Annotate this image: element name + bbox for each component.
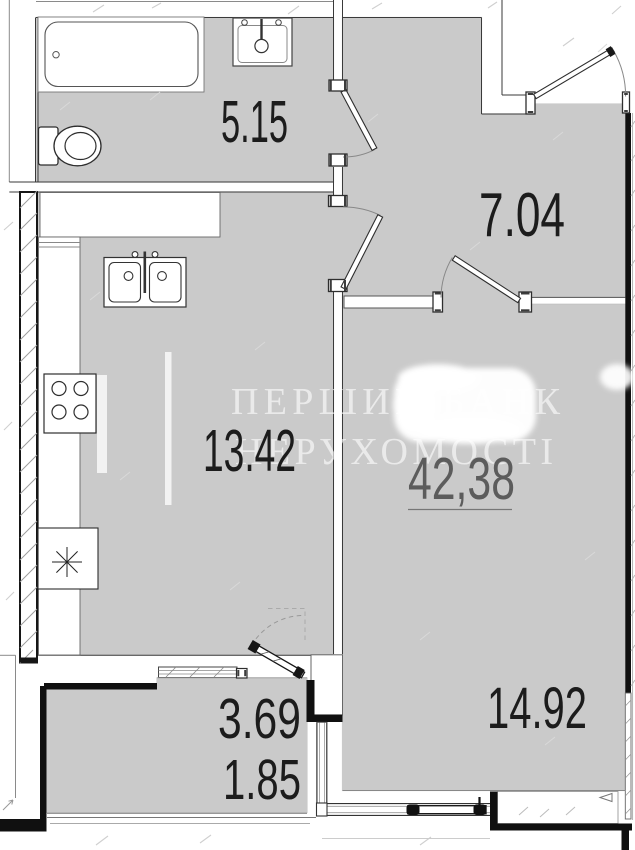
svg-text:5.15: 5.15 [221, 89, 288, 155]
svg-text:14.92: 14.92 [487, 676, 587, 741]
svg-text:13.42: 13.42 [203, 418, 296, 484]
svg-text:7.04: 7.04 [479, 181, 565, 250]
svg-text:1.85: 1.85 [223, 748, 301, 812]
svg-text:42,38: 42,38 [408, 446, 515, 512]
svg-text:3.69: 3.69 [218, 687, 301, 751]
